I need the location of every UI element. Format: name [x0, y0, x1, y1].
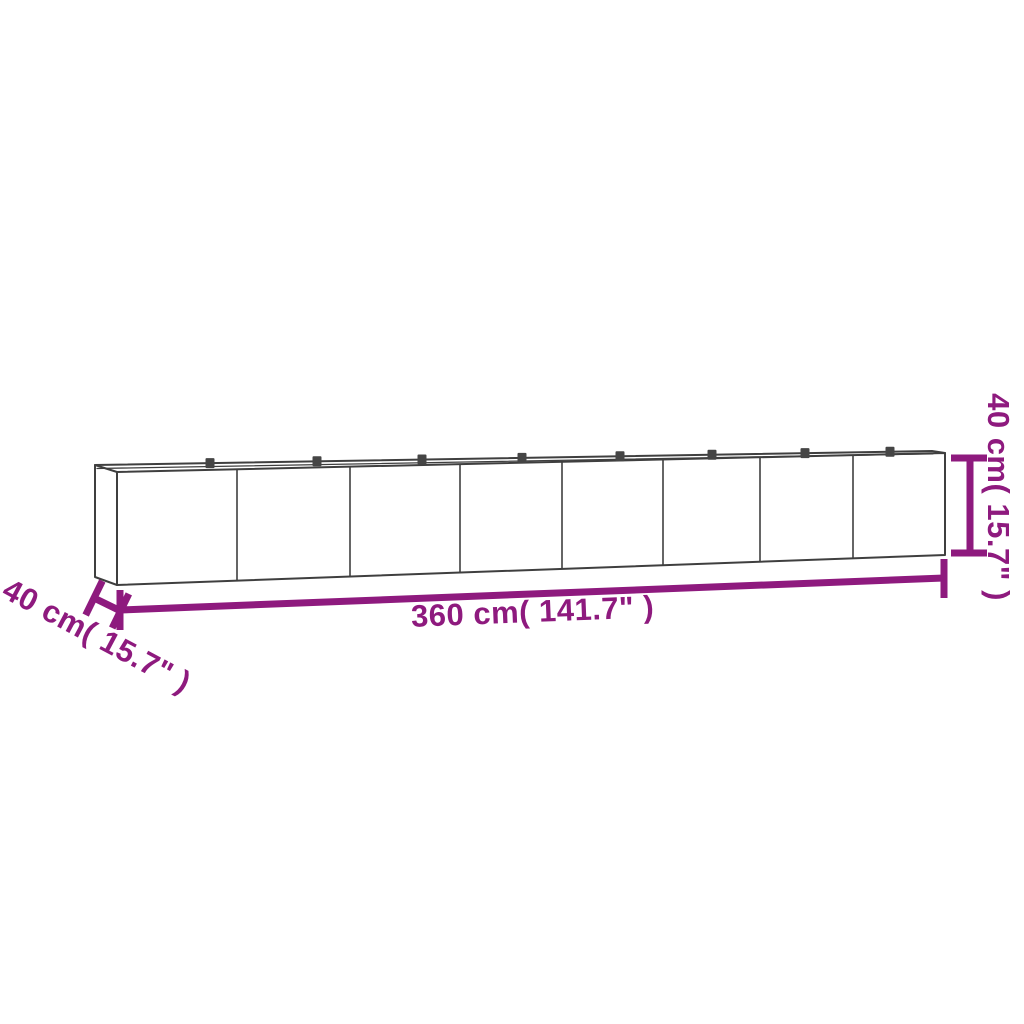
- planter-front-face: [117, 453, 945, 585]
- planter-left-face: [95, 465, 117, 585]
- diagram-svg: 360 cm( 141.7" ) 40 cm( 15.7" ) 40 cm( 1…: [0, 0, 1024, 1024]
- rim-clip-icon: [616, 451, 625, 461]
- rim-clip-icon: [206, 458, 215, 468]
- rim-clip-icon: [313, 456, 322, 466]
- rim-clip-icon: [708, 450, 717, 460]
- rim-clip-icon: [886, 447, 895, 457]
- product-dimension-image: 360 cm( 141.7" ) 40 cm( 15.7" ) 40 cm( 1…: [0, 0, 1024, 1024]
- rim-clip-icon: [518, 453, 527, 463]
- rim-clip-icon: [801, 448, 810, 458]
- dimension-labels: 360 cm( 141.7" ) 40 cm( 15.7" ) 40 cm( 1…: [0, 393, 1016, 700]
- rim-clip-icon: [418, 455, 427, 465]
- planter-box-outline: [95, 451, 945, 585]
- height-dimension-label: 40 cm( 15.7" ): [981, 393, 1016, 601]
